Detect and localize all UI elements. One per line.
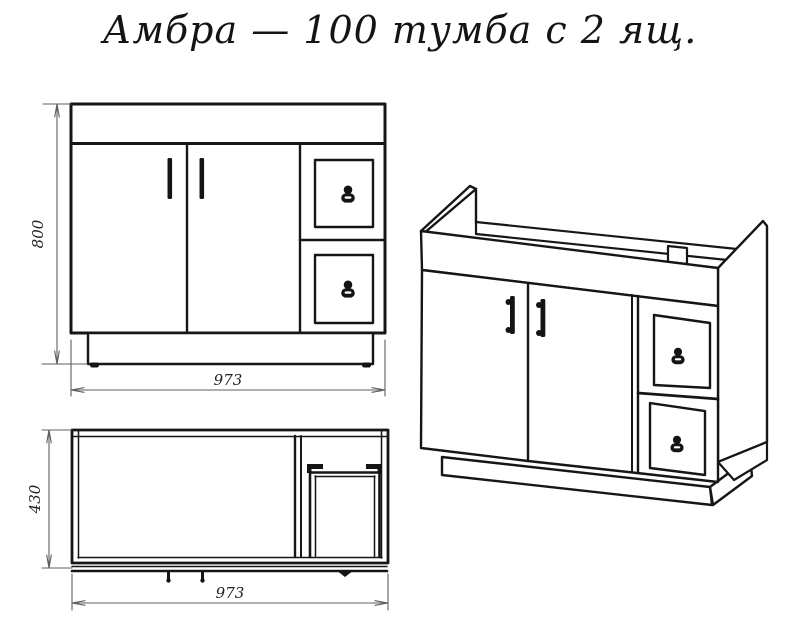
left-side-panel [421,186,476,234]
door-handle-top-icon [166,572,170,583]
front-view-drawing: 800 973 [30,95,400,405]
perspective-view-drawing [400,150,780,550]
door-handle-icon [200,158,205,199]
bottom-drawer-front [650,403,705,475]
plan-depth-label: 430 [26,484,44,514]
dimension-width-973: 973 [72,574,388,610]
right-side-panel [718,221,767,480]
foot [90,363,99,368]
carcass-plan-outline [72,430,388,563]
dimension-depth-430: 430 [26,430,72,568]
foot [362,363,371,368]
page-title: Амбра — 100 тумба с 2 ящ. [0,8,800,52]
door-front-edge-plan [72,567,387,583]
plan-width-label: 973 [216,584,245,602]
front-width-label: 973 [214,371,243,389]
top-drawer-front [654,315,710,388]
front-height-label: 800 [29,219,47,248]
bottom-drawer-front [315,255,373,323]
drawer-knob-top-icon [336,570,354,577]
plinth [88,333,373,368]
door-handle-icon [168,158,173,199]
plan-view-drawing: 430 973 [30,420,400,620]
door-handle-top-icon [200,572,204,583]
drawing-sheet: Амбра — 100 тумба с 2 ящ. [0,0,800,640]
